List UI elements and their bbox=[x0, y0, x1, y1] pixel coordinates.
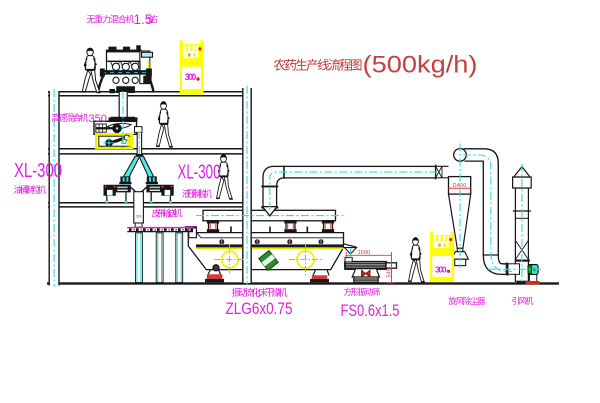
svg-text:高速混合机: 高速混合机 bbox=[52, 112, 89, 123]
svg-text:XL-300: XL-300 bbox=[14, 159, 62, 182]
svg-text:D400: D400 bbox=[453, 183, 467, 189]
svg-text:农药生产线流程图: 农药生产线流程图 bbox=[274, 58, 363, 73]
svg-text:ZLG6x0.75: ZLG6x0.75 bbox=[226, 300, 293, 318]
svg-text:XL-300: XL-300 bbox=[178, 161, 221, 184]
svg-text:1500: 1500 bbox=[358, 250, 370, 256]
svg-text:引风机: 引风机 bbox=[512, 296, 534, 306]
svg-text:立方: 立方 bbox=[147, 15, 159, 25]
svg-text:(500kg/h): (500kg/h) bbox=[363, 52, 478, 79]
svg-text:500: 500 bbox=[136, 214, 143, 219]
svg-text:FS0.6x1.5: FS0.6x1.5 bbox=[341, 302, 400, 320]
svg-text:方形振动筛: 方形振动筛 bbox=[344, 287, 381, 297]
svg-text:300: 300 bbox=[435, 265, 447, 275]
svg-text:振动流化床干燥机: 振动流化床干燥机 bbox=[232, 287, 288, 299]
svg-text:油桶制粒机: 油桶制粒机 bbox=[14, 184, 47, 195]
svg-text:液压制粒机: 液压制粒机 bbox=[182, 188, 212, 199]
svg-text:无重力混合机: 无重力混合机 bbox=[87, 14, 135, 25]
svg-text:350: 350 bbox=[89, 113, 107, 125]
svg-text:545: 545 bbox=[386, 268, 392, 277]
svg-text:皮带输送机: 皮带输送机 bbox=[152, 208, 183, 219]
svg-text:300: 300 bbox=[185, 72, 197, 82]
svg-text:旋风除尘器: 旋风除尘器 bbox=[449, 296, 486, 306]
